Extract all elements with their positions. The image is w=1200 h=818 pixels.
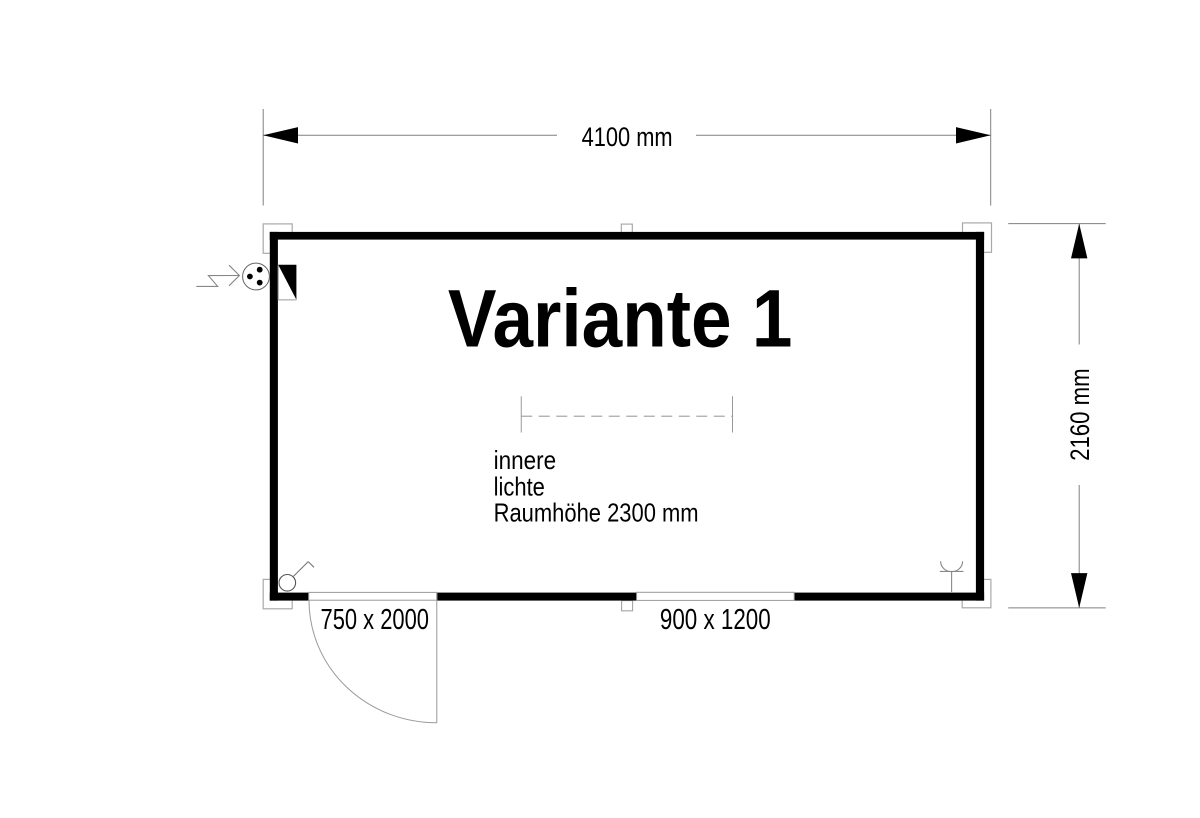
svg-text:Raumhöhe 2300 mm: Raumhöhe 2300 mm [494,497,699,527]
svg-text:Variante 1: Variante 1 [448,273,793,364]
svg-text:900 x 1200: 900 x 1200 [660,604,771,636]
svg-text:750 x 2000: 750 x 2000 [321,604,430,636]
svg-text:4100 mm: 4100 mm [582,122,673,152]
svg-text:2160 mm: 2160 mm [1065,368,1095,461]
